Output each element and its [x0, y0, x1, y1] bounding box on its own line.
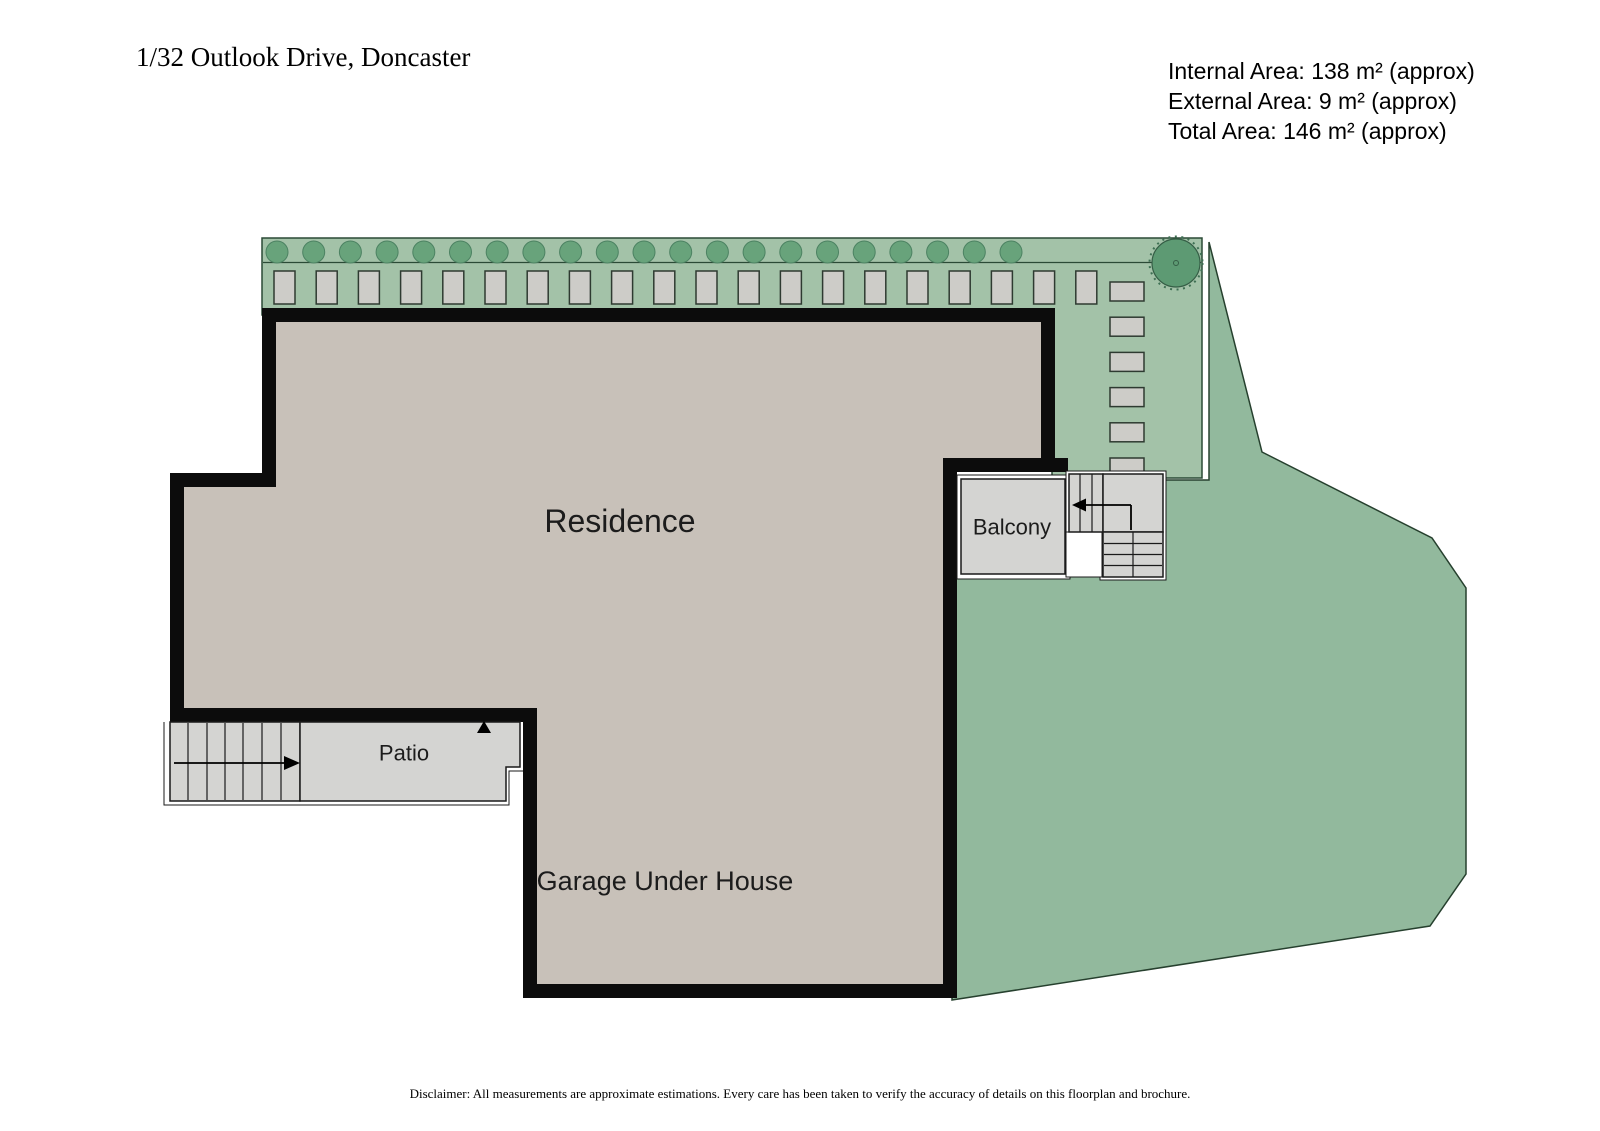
- paver: [274, 271, 295, 304]
- floorplan-drawing: Balcony: [0, 0, 1600, 1131]
- shrub-icon: [450, 241, 472, 263]
- paver: [527, 271, 548, 304]
- paver: [696, 271, 717, 304]
- disclaimer-text: Disclaimer: All measurements are approxi…: [0, 1086, 1600, 1102]
- paver: [1110, 423, 1144, 442]
- paver: [823, 271, 844, 304]
- paver: [1034, 271, 1055, 304]
- shrub-icon: [963, 241, 985, 263]
- shrub-icon: [817, 241, 839, 263]
- balcony: Balcony: [957, 475, 1070, 579]
- shrub-icon: [706, 241, 728, 263]
- shrub-icon: [376, 241, 398, 263]
- paver: [612, 271, 633, 304]
- paver: [316, 271, 337, 304]
- balcony-wall-extension: [1053, 458, 1068, 472]
- paver: [1076, 271, 1097, 304]
- shrub-icon: [853, 241, 875, 263]
- patio-area: Patio: [164, 721, 523, 805]
- paver: [738, 271, 759, 304]
- floorplan-page: 1/32 Outlook Drive, Doncaster Internal A…: [0, 0, 1600, 1131]
- paver: [401, 271, 422, 304]
- shrub-icon: [890, 241, 912, 263]
- paver: [907, 271, 928, 304]
- paver: [358, 271, 379, 304]
- shrub-icon: [596, 241, 618, 263]
- shrub-icon: [670, 241, 692, 263]
- stairs-notch: [1066, 532, 1102, 577]
- shrub-icon: [486, 241, 508, 263]
- shrub-icon: [1000, 241, 1022, 263]
- shrub-icon: [743, 241, 765, 263]
- shrub-icon: [523, 241, 545, 263]
- balcony-label: Balcony: [973, 515, 1051, 540]
- paver: [654, 271, 675, 304]
- shrub-icon: [413, 241, 435, 263]
- paver: [780, 271, 801, 304]
- paver: [1110, 282, 1144, 301]
- paver: [1110, 388, 1144, 407]
- shrub-row: [266, 241, 1022, 263]
- patio-label: Patio: [379, 741, 429, 766]
- paver: [865, 271, 886, 304]
- shrub-icon: [266, 241, 288, 263]
- paver: [569, 271, 590, 304]
- paver: [949, 271, 970, 304]
- shrub-icon: [339, 241, 361, 263]
- residence-label: Residence: [544, 503, 695, 539]
- paver: [443, 271, 464, 304]
- balcony-stairs: [1066, 471, 1166, 580]
- shrub-icon: [560, 241, 582, 263]
- garage-label: Garage Under House: [537, 866, 794, 896]
- paver: [485, 271, 506, 304]
- paver: [1110, 317, 1144, 336]
- shrub-icon: [303, 241, 325, 263]
- stair-landing: [1103, 474, 1163, 532]
- shrub-icon: [927, 241, 949, 263]
- shrub-icon: [780, 241, 802, 263]
- shrub-icon: [633, 241, 655, 263]
- paver: [1110, 352, 1144, 371]
- paver: [991, 271, 1012, 304]
